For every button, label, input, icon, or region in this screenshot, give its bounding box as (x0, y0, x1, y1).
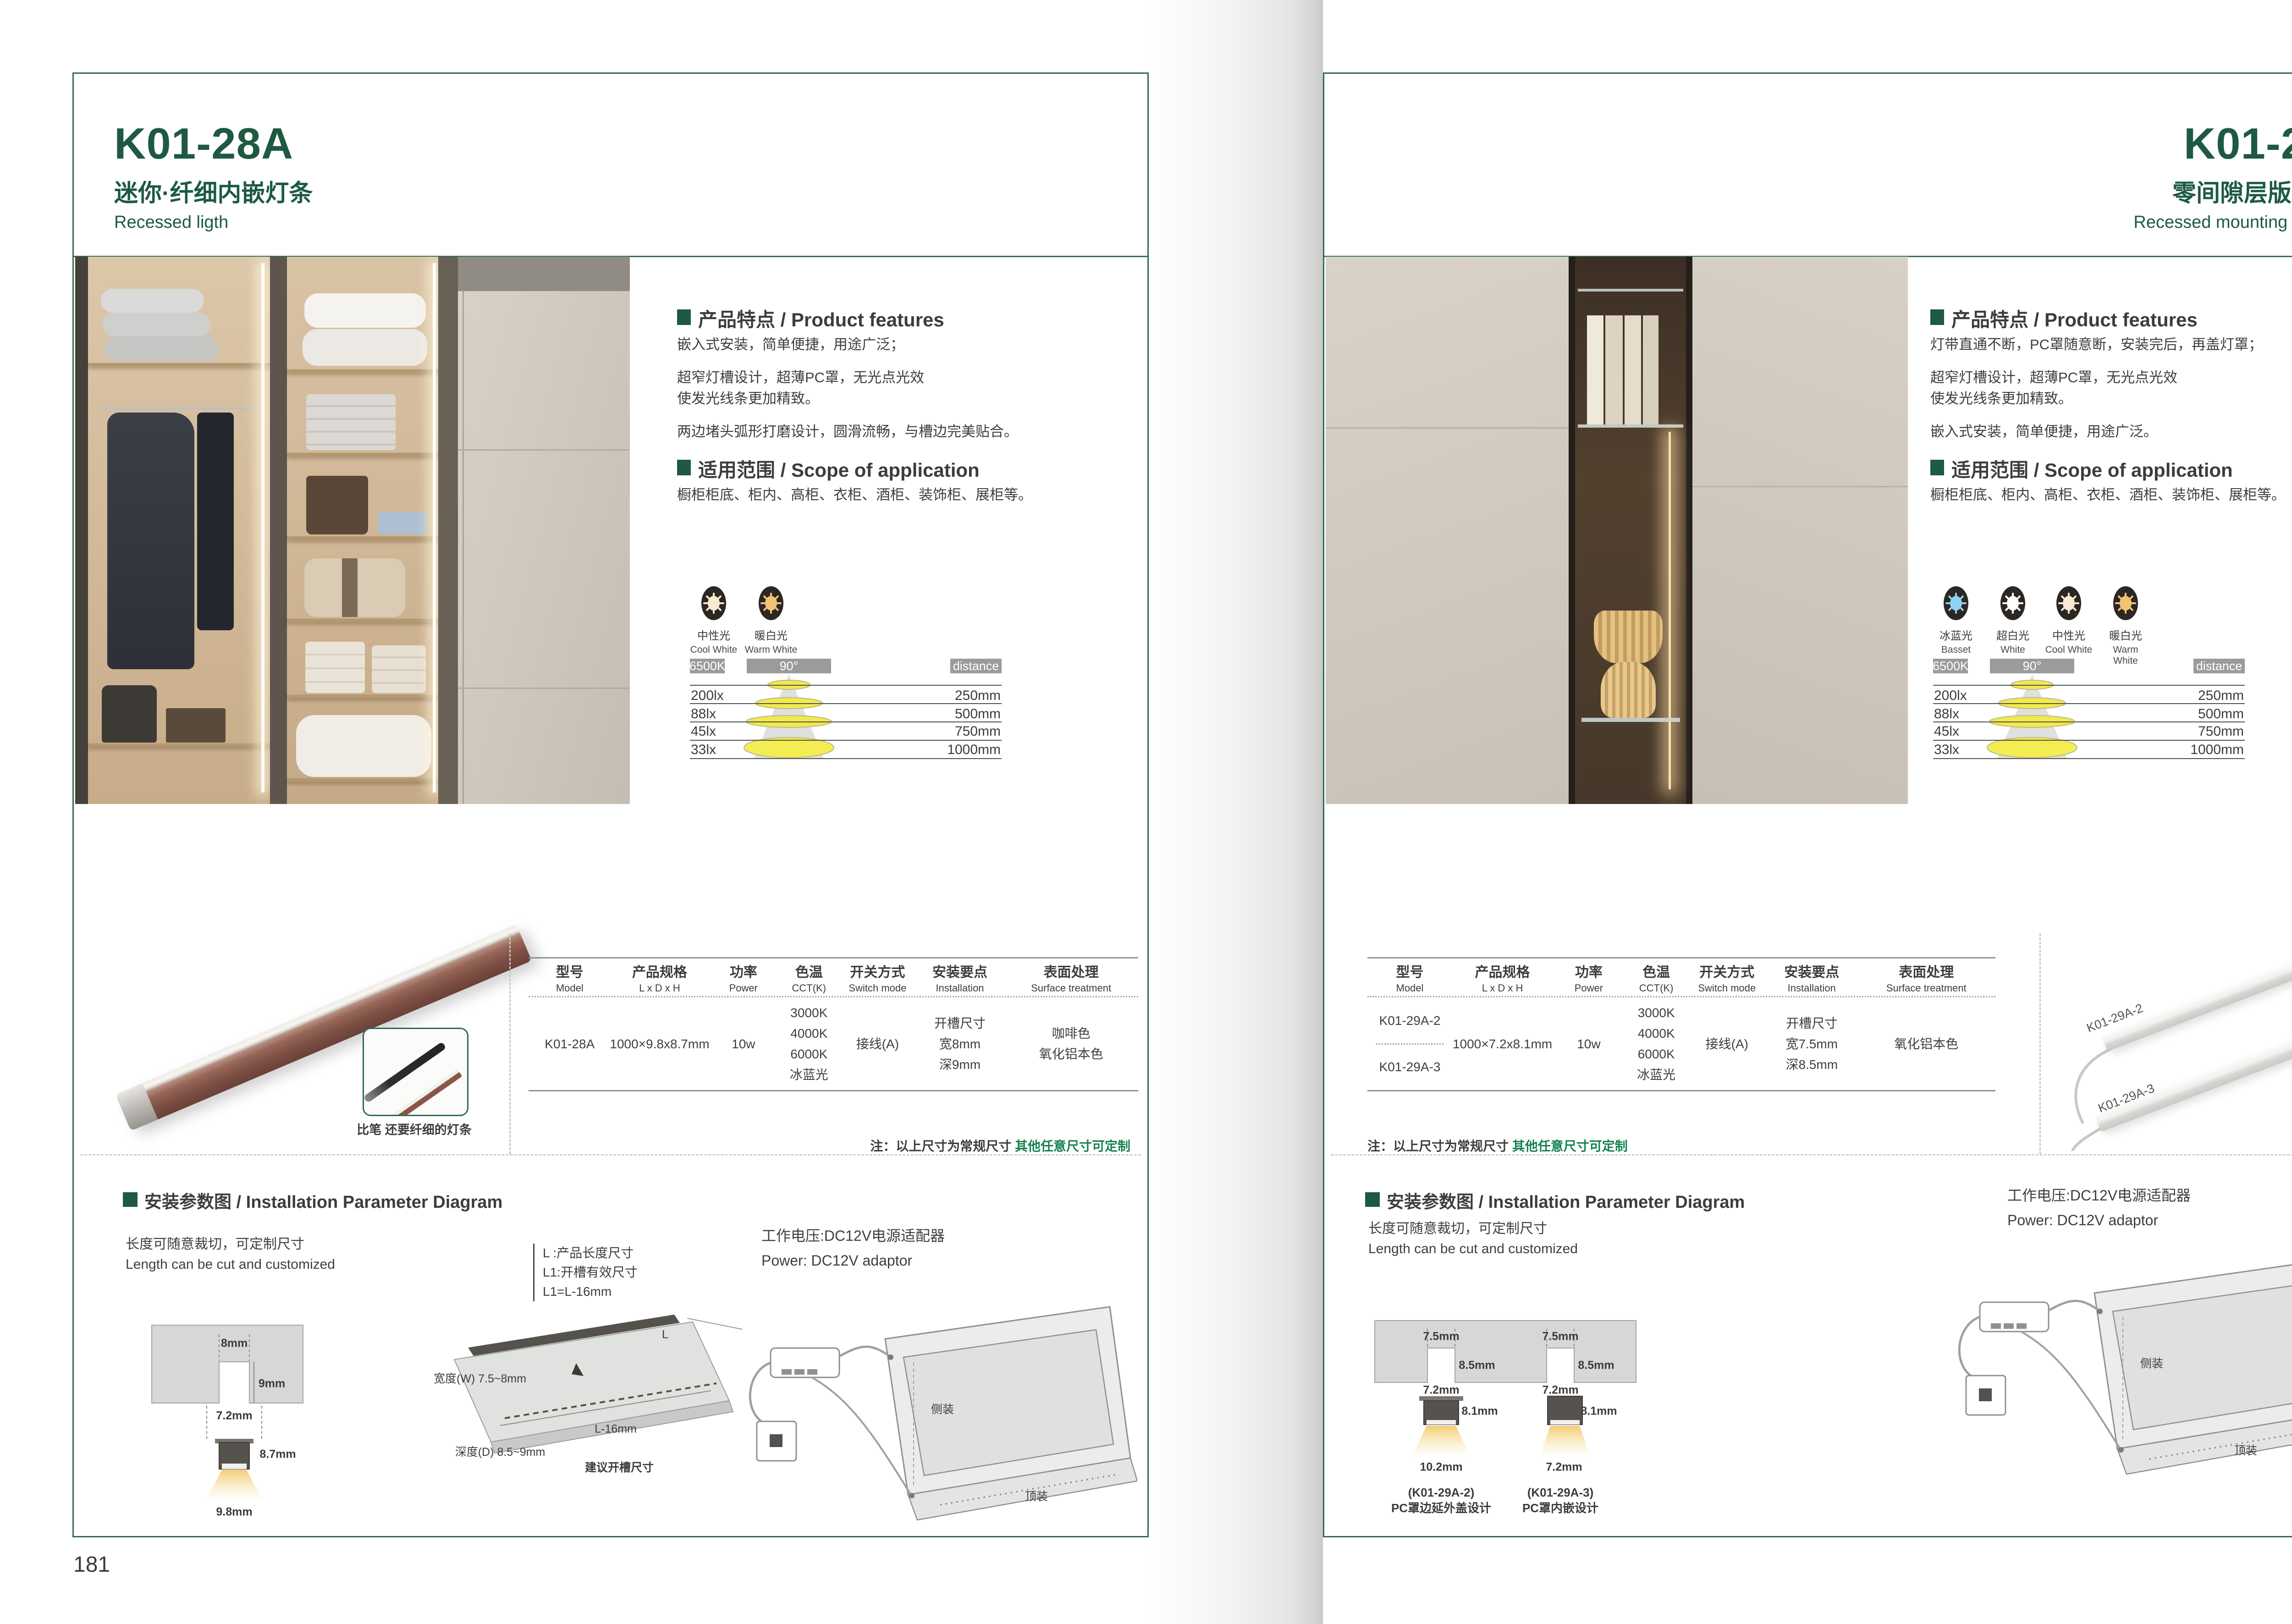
product-caption: 比笔 还要纤细的灯条 (347, 1120, 482, 1138)
scope-text: 橱柜柜底、柜内、高柜、衣柜、酒柜、装饰柜、展柜等。 (677, 484, 1140, 506)
feature-line: 灯带直通不断，PC罩随意断，安装完后，再盖灯罩； (1930, 334, 2292, 355)
section-bullet (123, 1192, 138, 1207)
scope-heading: 适用范围 / Scope of application (698, 455, 980, 483)
cross-section-diagram: 8mm 9mm 7.2mm 8.7mm 9.8mm (138, 1307, 335, 1522)
section-bullet (1930, 309, 1944, 325)
cell-model: K01-28A (529, 997, 611, 1090)
section-bullet (1365, 1192, 1380, 1207)
cell-switch: 接线(A) (839, 997, 915, 1090)
cross-section-diagram: 7.5mm 7.5mm 8.5mm 8.5mm 7.2mm 7.2mm 8.1m… (1368, 1311, 1643, 1527)
photometry-right: 冰蓝光 Basset 超白光 White (1933, 586, 2245, 770)
page-number-181: 181 (73, 1552, 110, 1577)
model-subtitle-cn: 迷你·纤细内嵌灯条 (114, 174, 313, 208)
led-strip-glow (261, 263, 264, 793)
cell-size: 1000×7.2x8.1mm (1452, 997, 1553, 1090)
feature-line: 超窄灯槽设计，超薄PC罩，无光点光效 (1930, 367, 2292, 388)
spec-table-row: K01-29A-2 K01-29A-3 1000×7.2x8.1mm 10w 3… (1367, 997, 1995, 1090)
cell-surface: 氧化铝本色 (1857, 997, 1995, 1090)
section-bullet (677, 460, 691, 475)
spec-table-row: K01-28A 1000×9.8x8.7mm 10w 3000K4000K 60… (529, 997, 1138, 1090)
feature-line: 嵌入式安装，简单便捷，用途广泛； (677, 334, 1135, 355)
cabinet-diagram: 侧装 顶装 (1952, 1233, 2292, 1476)
install-heading: 安装参数图 / Installation Parameter Diagram (1387, 1188, 1745, 1213)
feature-line: 两边堵头弧形打磨设计，圆滑流畅，与槽边完美贴合。 (677, 421, 1135, 442)
page-181: K01-28A 迷你·纤细内嵌灯条 Recessed ligth (72, 72, 1149, 1537)
title-block-left: K01-28A 迷你·纤细内嵌灯条 Recessed ligth (114, 121, 313, 232)
spec-table: 型号Model 产品规格L x D x H 功率Power 色温CCT(K) 开… (529, 957, 1138, 1091)
section-divider-dashed (80, 1154, 1141, 1156)
mini-strip-graphic (379, 1069, 463, 1116)
product-image-area: K01-29A-2 K01-29A-3 (2042, 926, 2292, 1151)
cell-size: 1000×9.8x8.7mm (611, 997, 709, 1090)
cell-cct: 3000K4000K 6000K冰蓝光 (778, 997, 839, 1090)
photometry-left: 中性光 Cool White 暖白光 Warm White 6500K 90° … (690, 586, 1002, 770)
model-subtitle-cn: 零间隙层版条形灯 (2133, 174, 2292, 208)
catalog-spread: K01-28A 迷你·纤细内嵌灯条 Recessed ligth (0, 0, 2292, 1624)
model-subtitle-en: Recessed mounting LED light (2133, 213, 2292, 232)
cut-note: 长度可随意裁切，可定制尺寸 Length can be cut and cust… (1368, 1219, 1578, 1259)
cell-switch: 接线(A) (1688, 997, 1766, 1090)
cut-note: 长度可随意裁切，可定制尺寸 Length can be cut and cust… (126, 1234, 335, 1275)
cell-install: 开槽尺寸宽8mm深9mm (916, 997, 1004, 1090)
led-profile-bar (116, 925, 532, 1131)
led-strip-glow (433, 263, 436, 793)
profile-a-caption: (K01-29A-2) PC罩边延外盖设计 (1391, 1485, 1491, 1516)
model-title: K01-29A (2133, 121, 2292, 166)
feature-line: 嵌入式安装，简单便捷，用途广泛。 (1930, 421, 2292, 442)
features-text: 灯带直通不断，PC罩随意断，安装完后，再盖灯罩； 超窄灯槽设计，超薄PC罩，无光… (1930, 334, 2292, 454)
cell-power: 10w (708, 997, 778, 1090)
column-divider-dashed (509, 933, 511, 1154)
profile-b-caption: (K01-29A-3) PC罩内嵌设计 (1522, 1485, 1598, 1516)
install-heading: 安装参数图 / Installation Parameter Diagram (144, 1188, 502, 1213)
section-divider-dashed (1331, 1154, 2292, 1156)
led-strip-glow (1669, 432, 1671, 789)
feature-line: 使发光线条更加精致。 (1930, 388, 2292, 409)
features-heading: 产品特点 / Product features (1951, 304, 2198, 332)
column-divider-dashed (2039, 933, 2041, 1154)
model-subtitle-en: Recessed ligth (114, 213, 313, 232)
feature-line: 超窄灯槽设计，超薄PC罩，无光点光效 (677, 367, 1135, 388)
scope-text: 橱柜柜底、柜内、高柜、衣柜、酒柜、装饰柜、展柜等。 (1930, 484, 2292, 506)
spec-table: 型号Model 产品规格L x D x H 功率Power 色温CCT(K) 开… (1367, 957, 1995, 1091)
cell-power: 10w (1553, 997, 1625, 1090)
cabinet-diagram: 侧装 顶装 (743, 1279, 1137, 1522)
power-note: 工作电压:DC12V电源适配器 Power: DC12V adaptor (761, 1223, 945, 1273)
model-title: K01-28A (114, 121, 313, 166)
page-fold-shadow (1147, 0, 1323, 1624)
cell-install: 开槽尺寸宽7.5mm深8.5mm (1766, 997, 1857, 1090)
product-image-area (110, 931, 537, 1133)
cabinet-photo (1326, 257, 1908, 804)
page-182: K01-29A 零间隙层版条形灯 Recessed mounting LED l… (1323, 72, 2292, 1537)
section-bullet (1930, 460, 1944, 475)
title-block-right: K01-29A 零间隙层版条形灯 Recessed mounting LED l… (2133, 121, 2292, 232)
feature-line: 使发光线条更加精致。 (677, 388, 1135, 409)
customization-note: 注：以上尺寸为常规尺寸 其他任意尺寸可定制 (1367, 1136, 1628, 1155)
cabinet-graphic (1952, 1233, 2292, 1476)
cell-models: K01-29A-2 K01-29A-3 (1367, 997, 1452, 1090)
features-text: 嵌入式安装，简单便捷，用途广泛； 超窄灯槽设计，超薄PC罩，无光点光效 使发光线… (677, 334, 1135, 454)
strip-wires (2042, 926, 2292, 1151)
spec-table-header: 型号Model 产品规格L x D x H 功率Power 色温CCT(K) 开… (529, 961, 1138, 994)
length-legend: L :产品长度尺寸 L1:开槽有效尺寸 L1=L-16mm (533, 1244, 638, 1301)
cell-cct: 3000K4000K 6000K冰蓝光 (1625, 997, 1688, 1090)
slot-board-diagram: L 宽度(W) 7.5~8mm L-16mm 深度(D) 8.5~9mm 建议开… (436, 1309, 766, 1474)
section-bullet (677, 309, 691, 325)
wardrobe-photo (75, 257, 630, 804)
pen-comparison-inset (363, 1028, 468, 1116)
spec-table-header: 型号Model 产品规格L x D x H 功率Power 色温CCT(K) 开… (1367, 961, 1995, 994)
customization-note: 注：以上尺寸为常规尺寸 其他任意尺寸可定制 (529, 1136, 1130, 1155)
cell-surface: 咖啡色氧化铝本色 (1004, 997, 1138, 1090)
features-heading: 产品特点 / Product features (698, 304, 944, 332)
power-note: 工作电压:DC12V电源适配器 Power: DC12V adaptor (2007, 1183, 2191, 1233)
pleated-vase (1594, 611, 1663, 663)
scope-heading: 适用范围 / Scope of application (1951, 455, 2233, 483)
niche (1569, 257, 1692, 804)
